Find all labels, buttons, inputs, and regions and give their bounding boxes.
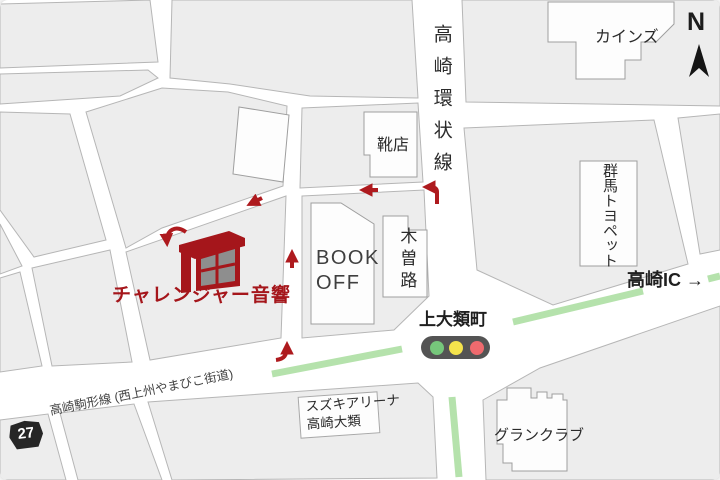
building-tilted-shape (233, 107, 289, 182)
route-arrow-southwest (250, 198, 262, 204)
route-arrow-turn-west-from-ring-road (426, 187, 437, 204)
intersection-label: 上大類町 (419, 310, 487, 330)
city-block (32, 250, 132, 366)
city-block (60, 404, 162, 480)
route-arrow-turn-north-from-main-road (276, 345, 287, 360)
compass-north-label: N (687, 8, 705, 37)
city-block (0, 0, 158, 68)
bookoff-label-line2: OFF (316, 271, 380, 296)
cainz-label: カインズ (595, 28, 659, 47)
highway-direction-label: 高崎IC → (627, 270, 704, 292)
grand-club-label: グランクラブ (494, 427, 584, 445)
shoe-store-label: 靴店 (377, 136, 409, 155)
city-block (170, 0, 418, 98)
signal-red-light (470, 341, 484, 355)
bookoff-label: BOOK OFF (316, 246, 380, 296)
traffic-light-icon (421, 336, 490, 359)
ring-road-label: 高崎環状線 (429, 24, 452, 184)
signal-yellow-light (449, 341, 463, 355)
road-median-stripe (708, 276, 720, 279)
road-median-stripe (452, 397, 459, 477)
kisoji-label: 木曽路 (396, 227, 416, 293)
access-map: 高崎環状線 靴店 カインズ 群馬トヨペット BOOK OFF 木曽路 チャレンジ… (0, 0, 720, 480)
gunma-toyopet-label: 群馬トヨペット (600, 163, 618, 268)
store-name-label: チャレンジャー音響 (112, 285, 291, 308)
signal-green-light (430, 341, 444, 355)
city-block (0, 112, 106, 257)
city-block (678, 114, 720, 254)
road-median-stripe (272, 349, 402, 374)
suzuki-label: スズキアリーナ 高崎大類 (305, 391, 402, 434)
bookoff-label-line1: BOOK (316, 246, 380, 271)
